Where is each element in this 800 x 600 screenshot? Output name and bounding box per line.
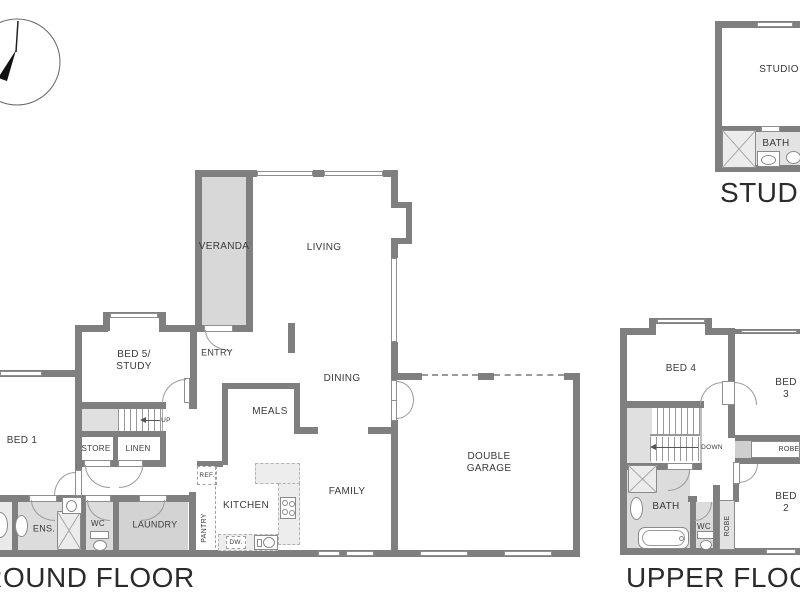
room-label-kitchen: KITCHEN — [223, 500, 269, 512]
door-arc — [734, 382, 757, 405]
window — [504, 551, 552, 556]
stair-label-down: DOWN — [701, 444, 723, 452]
wall — [728, 334, 735, 382]
garage-door-line — [422, 374, 478, 376]
room-label-dining: DINING — [324, 373, 361, 385]
door-arc — [119, 465, 143, 488]
north-arrow-icon — [0, 18, 62, 107]
wall — [222, 383, 228, 465]
room-label-bed1: BED 1 — [7, 435, 37, 447]
room-label-robe-bed3: ROBE — [778, 446, 799, 454]
wall — [391, 420, 398, 557]
wall — [195, 170, 257, 177]
wall — [78, 431, 165, 437]
wall — [620, 328, 627, 555]
room-label-meals: MEALS — [252, 406, 287, 418]
up-arrow-head — [140, 417, 146, 423]
stair-edge — [700, 408, 702, 463]
wall — [779, 126, 800, 132]
toilet-cistern — [697, 531, 714, 539]
wall — [222, 383, 300, 389]
wall — [728, 404, 735, 438]
wall — [113, 437, 118, 461]
garage-door-line — [494, 374, 564, 376]
burner — [282, 500, 288, 506]
room-label-bed2: BED 2 — [775, 491, 796, 515]
wall — [573, 373, 580, 557]
shower-icon — [57, 511, 81, 550]
room-label-wc: WC — [91, 519, 105, 529]
basin-icon — [630, 497, 643, 520]
room-label-pantry: PANTRY — [201, 513, 209, 543]
wall — [478, 373, 494, 380]
basin-icon — [66, 500, 77, 512]
label-fridge: REF. — [199, 472, 214, 480]
window — [318, 551, 340, 556]
caption-studio: STUDIO — [720, 177, 800, 209]
wall — [715, 21, 722, 172]
wall — [142, 460, 164, 467]
window — [346, 551, 374, 556]
wall — [113, 500, 119, 550]
room-label-bath: BATH — [652, 501, 679, 513]
wall — [232, 325, 253, 332]
room-label-bed3: BED 3 — [775, 377, 796, 401]
toilet-icon — [761, 155, 776, 165]
window — [324, 171, 383, 176]
shower-icon — [628, 465, 657, 493]
door-arc — [85, 465, 110, 488]
wall — [383, 170, 398, 177]
room-label-family: FAMILY — [329, 486, 366, 498]
stair-treads — [650, 437, 702, 461]
wall — [620, 401, 704, 408]
sink-bowl — [263, 537, 275, 548]
shower-icon — [722, 130, 756, 168]
door-arc — [54, 472, 75, 495]
caption-upper-floor: UPPER FLOOR — [626, 562, 800, 594]
room-label-robe-bed2: ROBE — [724, 515, 732, 536]
room-label-garage: DOUBLE GARAGE — [467, 451, 512, 475]
room-label-wc-upper: WC — [697, 522, 711, 532]
up-arrow-line — [146, 420, 160, 421]
stair-landing — [627, 408, 652, 463]
wall — [294, 427, 318, 434]
room-label-ens: ENS. — [33, 524, 55, 535]
wall — [395, 373, 422, 380]
toilet-icon — [93, 540, 107, 551]
toilet-cistern — [90, 531, 109, 539]
stair-treads — [657, 408, 700, 434]
toilet-icon — [700, 540, 712, 550]
window — [110, 313, 158, 318]
window — [257, 171, 313, 176]
window — [766, 549, 796, 554]
room-label-bed4: BED 4 — [666, 363, 696, 375]
room-label-store: STORE — [82, 444, 111, 454]
door-arc — [397, 381, 414, 400]
wall — [391, 244, 398, 258]
sink-bowl — [257, 539, 262, 547]
wall — [313, 170, 324, 177]
pantry-dash-line — [215, 467, 216, 548]
wall — [368, 427, 391, 434]
burner — [289, 501, 295, 507]
label-dishwasher: DW. — [229, 539, 242, 547]
room-label-bed5: BED 5/ STUDY — [116, 349, 151, 373]
wall — [189, 402, 197, 409]
door-leaf — [75, 470, 82, 496]
burner — [282, 509, 288, 515]
robe-shelf — [735, 441, 751, 458]
door-leaf — [667, 463, 693, 470]
door-arc — [162, 379, 186, 403]
door-leaf — [761, 126, 780, 132]
wall — [0, 550, 580, 557]
door-arc — [739, 464, 758, 483]
wall — [75, 377, 82, 472]
wall — [189, 492, 196, 550]
wall — [110, 460, 118, 467]
window — [741, 330, 797, 333]
wall — [190, 325, 197, 409]
stair-label-up: UP — [161, 417, 171, 425]
down-arrow-line — [656, 447, 698, 448]
room-label-studio-bath: BATH — [762, 138, 789, 150]
stair-rail — [650, 434, 702, 436]
burner — [289, 510, 295, 516]
kitchen-bench — [255, 463, 300, 484]
wall — [288, 323, 295, 353]
room-label-linen: LINEN — [125, 444, 150, 454]
wall — [75, 402, 166, 409]
room-label-veranda: VERANDA — [199, 241, 249, 253]
down-arrow-head — [650, 444, 656, 450]
floor-plan-canvas: VERANDA LIVING ENTRY BED 5/ STUDY BED 1 … — [0, 0, 800, 600]
basin-icon — [15, 515, 28, 537]
door-arc — [700, 382, 723, 405]
window — [420, 551, 468, 556]
room-label-living: LIVING — [307, 242, 342, 254]
door-arc — [397, 400, 414, 419]
window — [757, 22, 793, 27]
stair-landing — [82, 409, 118, 431]
window — [391, 258, 397, 342]
room-label-laundry: LAUNDRY — [133, 520, 178, 531]
caption-ground-floor: GROUND FLOOR — [0, 562, 195, 594]
room-label-studio: STUDIO — [759, 64, 799, 76]
bath-faucet — [679, 536, 684, 541]
window — [657, 319, 705, 323]
window — [0, 371, 42, 376]
wall — [294, 389, 300, 431]
room-label-entry: ENTRY — [201, 348, 233, 359]
basin-icon — [786, 151, 800, 164]
